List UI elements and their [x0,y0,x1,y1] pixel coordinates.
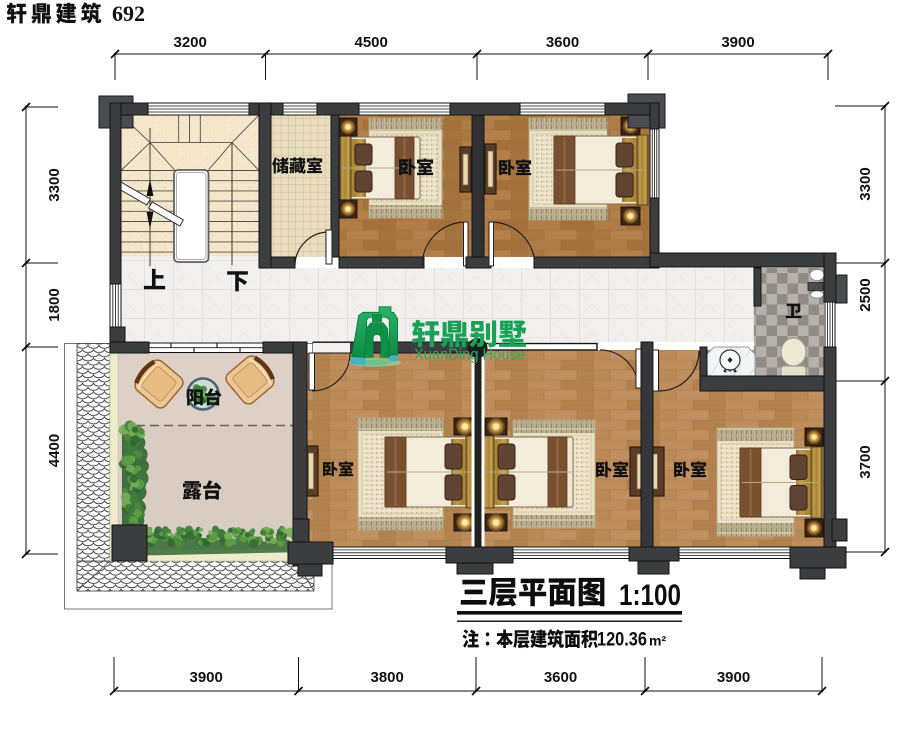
svg-text:1800: 1800 [46,288,63,321]
svg-text:m²: m² [649,633,666,649]
svg-text:120.36: 120.36 [597,630,647,651]
svg-text:3900: 3900 [721,34,754,51]
svg-text:1:100: 1:100 [619,579,681,612]
svg-text:3900: 3900 [717,669,750,686]
svg-text:3700: 3700 [857,445,874,478]
svg-text:4400: 4400 [46,434,63,467]
svg-text:3800: 3800 [371,669,404,686]
svg-text:692: 692 [112,1,145,26]
svg-text:4500: 4500 [355,34,388,51]
svg-text:2500: 2500 [857,278,874,311]
svg-text:3200: 3200 [174,34,207,51]
svg-text:3300: 3300 [857,167,874,200]
svg-text:3600: 3600 [544,669,577,686]
svg-text:3300: 3300 [46,168,63,201]
svg-text:XuanDing House: XuanDing House [414,347,525,364]
svg-text:3900: 3900 [190,669,223,686]
svg-text:3600: 3600 [546,34,579,51]
